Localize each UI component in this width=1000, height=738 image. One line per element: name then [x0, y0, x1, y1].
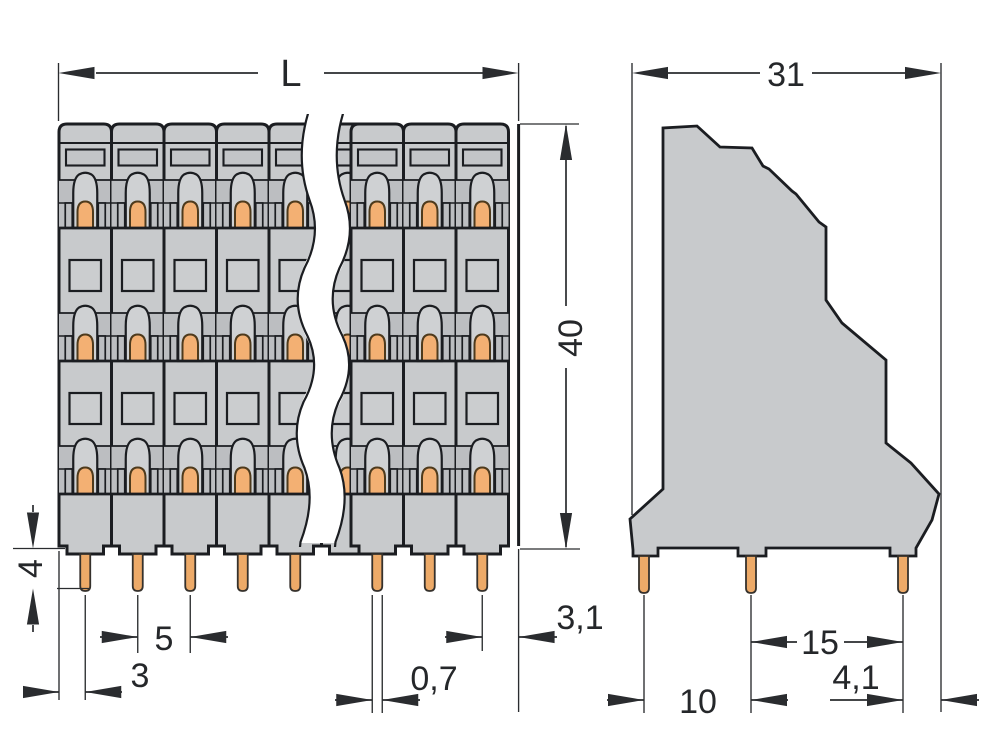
dim-pin-pitch: 5 — [100, 595, 228, 658]
dim-label-height: 40 — [552, 319, 590, 357]
solder-pin — [425, 554, 435, 591]
solder-pin — [80, 554, 90, 591]
terminal-pole — [164, 124, 217, 554]
terminal-pole — [112, 124, 165, 554]
side-view — [630, 126, 939, 593]
solder-pin — [898, 556, 908, 593]
dim-pin-to-back: 4,1 — [830, 659, 979, 706]
dim-label-pin-to-back: 4,1 — [832, 659, 879, 697]
dim-label-depth: 31 — [767, 56, 805, 94]
solder-pin — [746, 556, 756, 593]
dim-pin-to-end: 3,1 — [445, 549, 604, 712]
solder-pin — [639, 556, 649, 593]
dim-label-pin-pitch: 5 — [155, 620, 174, 658]
terminal-pole — [217, 124, 270, 554]
terminal-pole — [456, 124, 509, 554]
terminal-pole — [351, 124, 404, 554]
dim-front-length: L — [59, 53, 519, 121]
dim-label-front-pin-spacing: 10 — [679, 683, 717, 721]
dim-label-pin-to-end: 3,1 — [556, 599, 603, 637]
solder-pins-front — [80, 554, 487, 591]
dim-front-pin-spacing: 10 — [607, 595, 788, 721]
terminal-pole — [404, 124, 457, 554]
solder-pin — [185, 554, 195, 591]
solder-pin — [133, 554, 143, 591]
dim-label-pin-width: 0,7 — [410, 660, 457, 698]
dim-label-pin-length: 4 — [12, 559, 50, 578]
dim-label-edge-to-pin: 3 — [131, 657, 150, 695]
solder-pin — [477, 554, 487, 591]
front-view — [59, 112, 561, 591]
drawing-canvas: L 40 4 3 — [0, 0, 1000, 738]
dim-label-length: L — [280, 53, 301, 95]
terminal-pole — [59, 124, 112, 554]
side-profile — [630, 126, 939, 556]
solder-pin — [372, 554, 382, 591]
dim-label-pin-row-span: 15 — [801, 624, 839, 662]
dim-front-height: 40 — [520, 124, 590, 549]
terminal-block-dimension-drawing: L 40 4 3 — [0, 0, 1000, 738]
solder-pin — [290, 554, 300, 591]
dim-pin-width: 0,7 — [335, 595, 458, 713]
dim-pin-row-span: 15 — [751, 595, 903, 713]
solder-pin — [238, 554, 248, 591]
